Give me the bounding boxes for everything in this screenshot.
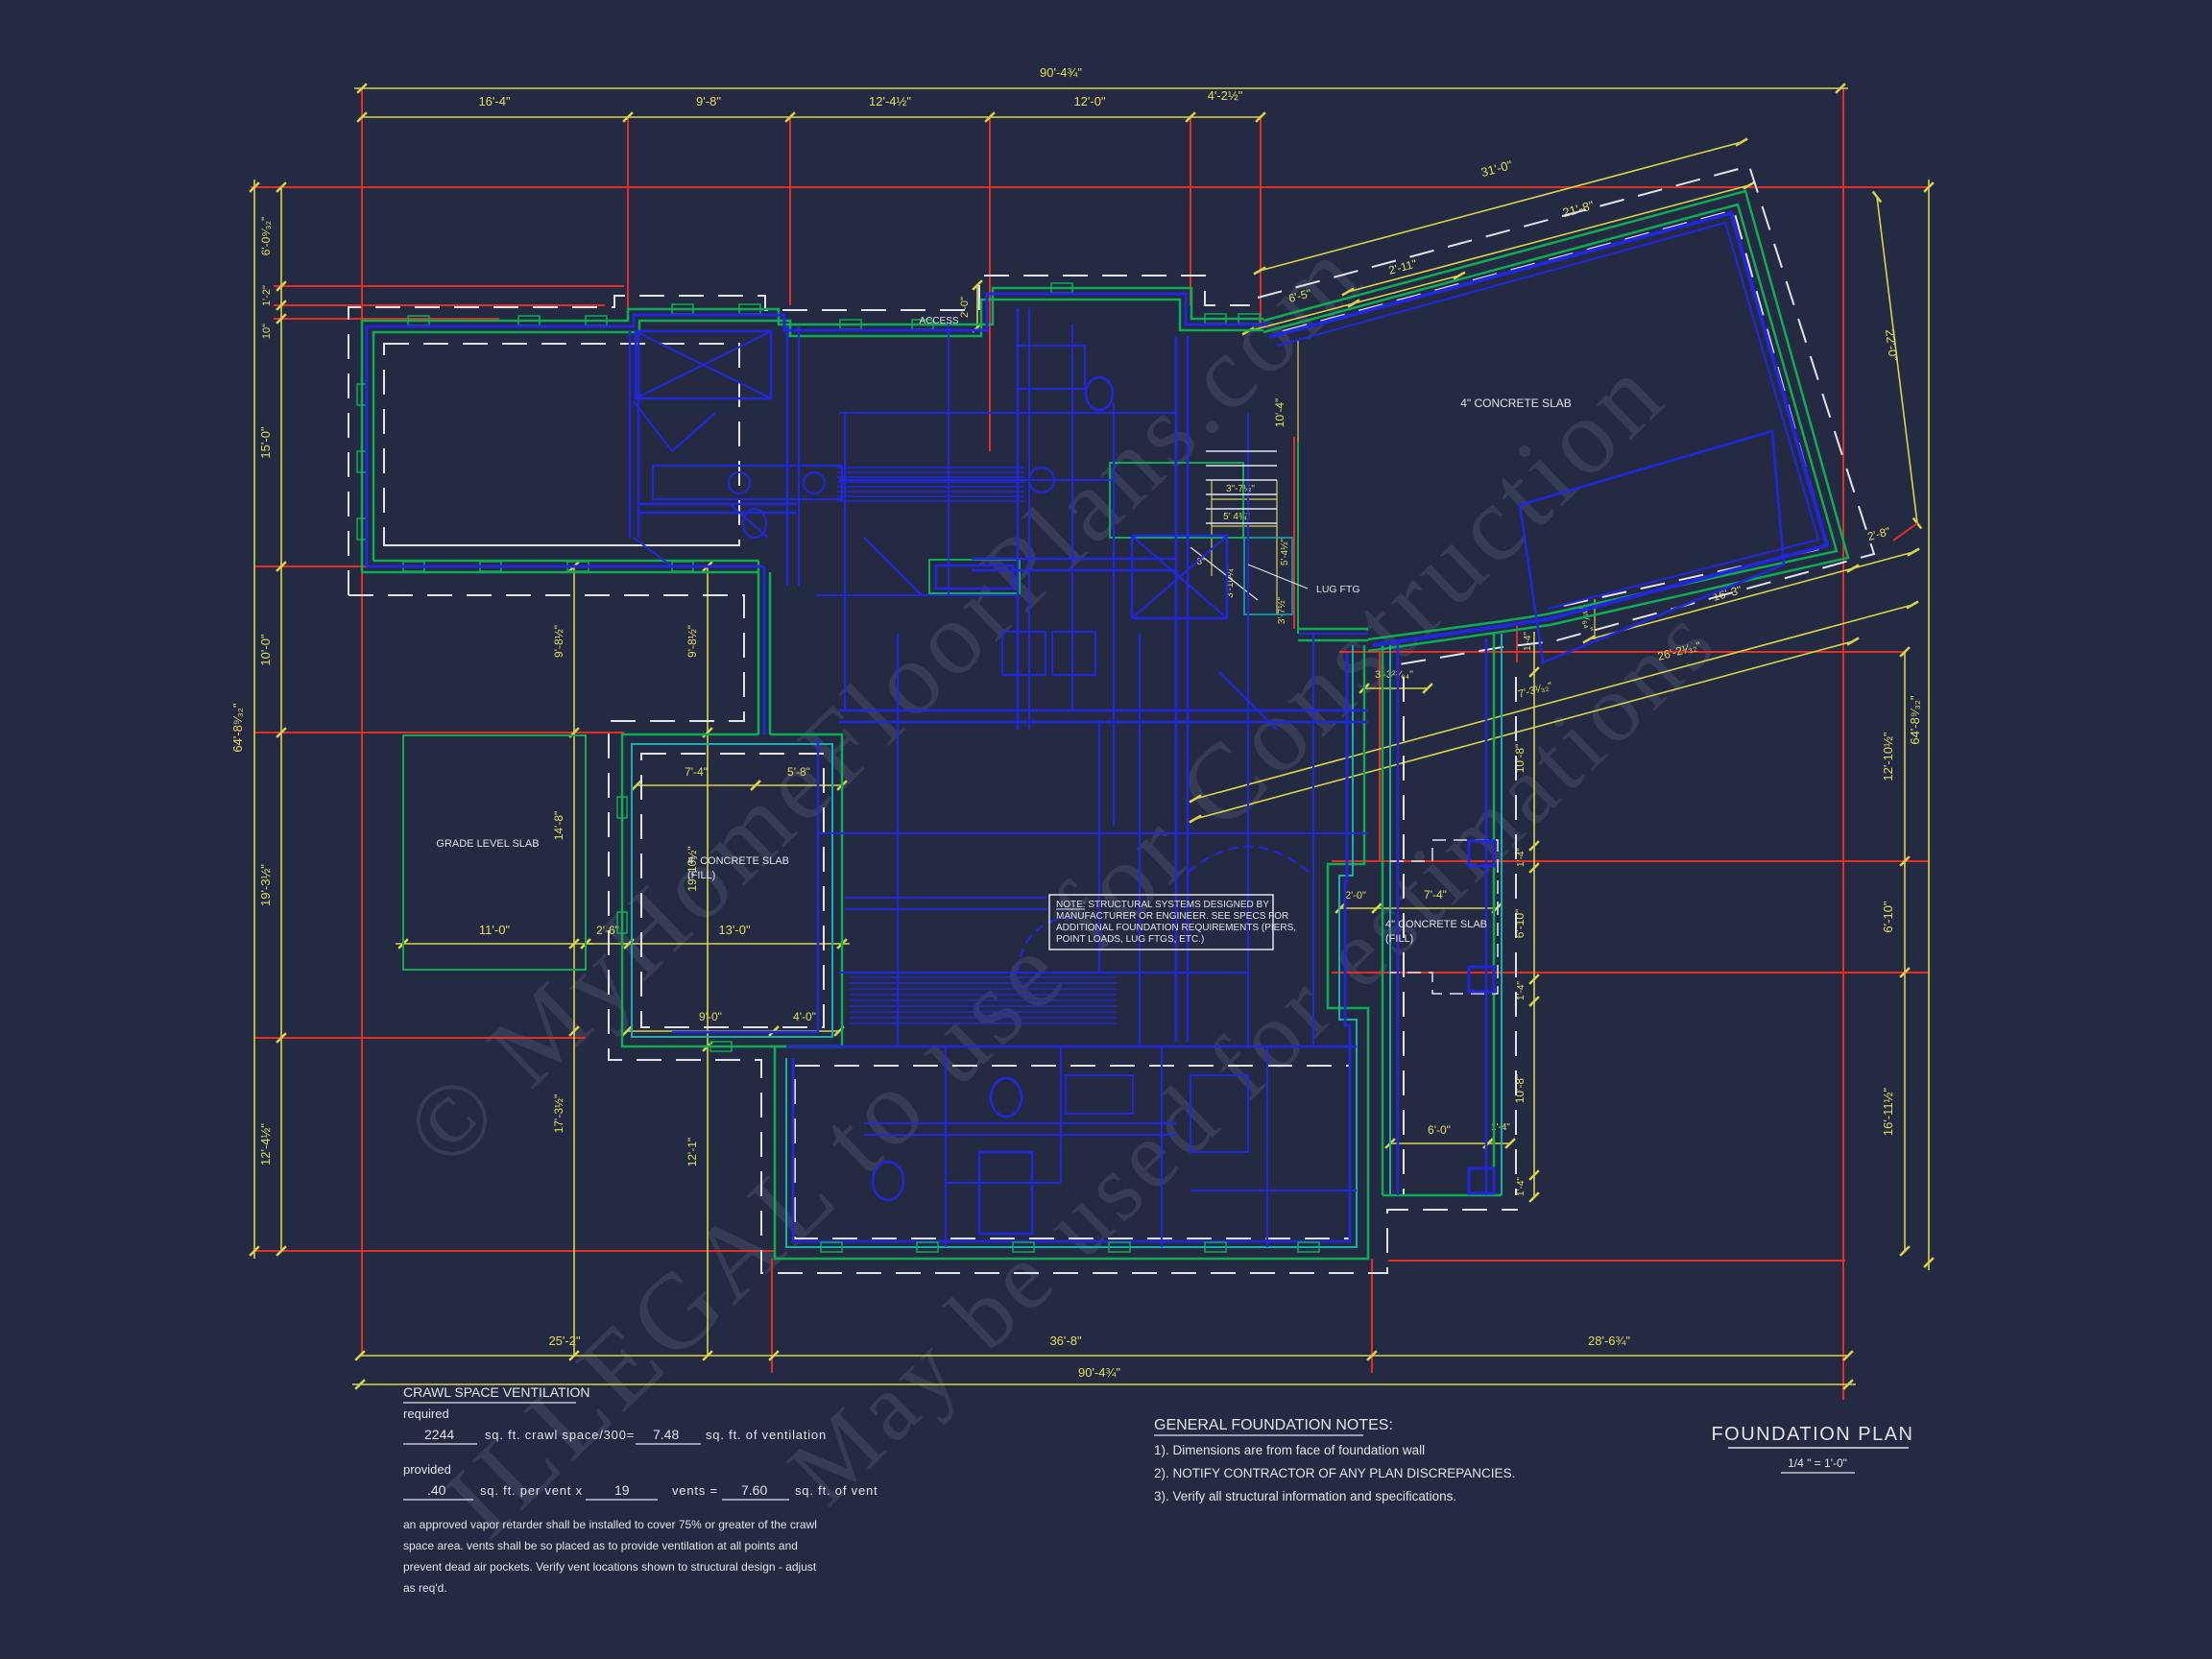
svg-text:12'-1": 12'-1" — [685, 1138, 699, 1167]
svg-text:10": 10" — [261, 324, 273, 339]
svg-text:required: required — [403, 1407, 449, 1421]
svg-text:2'-0": 2'-0" — [959, 297, 971, 318]
svg-text:16'-11½": 16'-11½" — [1881, 1088, 1895, 1137]
svg-text:9'-8½": 9'-8½" — [552, 625, 565, 658]
svg-text:6'-0": 6'-0" — [1428, 1123, 1451, 1137]
svg-text:.40: .40 — [427, 1482, 446, 1498]
svg-text:10'-0": 10'-0" — [258, 634, 273, 666]
svg-text:GENERAL FOUNDATION NOTES:: GENERAL FOUNDATION NOTES: — [1154, 1417, 1393, 1433]
svg-text:4'-2½": 4'-2½" — [1208, 88, 1243, 103]
svg-text:17'-3½": 17'-3½" — [552, 1094, 565, 1134]
svg-text:16'-4": 16'-4" — [478, 94, 511, 108]
svg-text:prevent dead air pockets. Veri: prevent dead air pockets. Verify vent lo… — [403, 1560, 817, 1574]
svg-text:3"-7½": 3"-7½" — [1226, 484, 1255, 494]
svg-text:7.48: 7.48 — [653, 1427, 679, 1442]
svg-text:90'-4¾": 90'-4¾" — [1078, 1365, 1120, 1380]
svg-text:3'-7½": 3'-7½" — [1277, 596, 1287, 624]
svg-text:2244: 2244 — [424, 1427, 454, 1442]
svg-text:11'-0": 11'-0" — [479, 923, 511, 937]
svg-text:5'-4½": 5'-4½" — [1280, 538, 1290, 565]
svg-text:10'-4": 10'-4" — [1273, 398, 1286, 428]
svg-text:2). NOTIFY CONTRACTOR OF ANY P: 2). NOTIFY CONTRACTOR OF ANY PLAN DISCRE… — [1154, 1466, 1515, 1480]
svg-text:12'-10½": 12'-10½" — [1881, 732, 1895, 781]
svg-text:12'-0": 12'-0" — [1073, 94, 1106, 108]
svg-text:19: 19 — [614, 1482, 630, 1498]
svg-text:6'-10": 6'-10" — [1881, 901, 1895, 933]
svg-text:an approved vapor retarder sha: an approved vapor retarder shall be inst… — [403, 1518, 817, 1531]
svg-text:LUG FTG: LUG FTG — [1316, 584, 1360, 595]
svg-text:5'-8": 5'-8" — [787, 765, 810, 779]
svg-text:5' 4¾": 5' 4¾" — [1223, 512, 1250, 522]
svg-text:(FILL): (FILL) — [1385, 933, 1413, 945]
svg-text:4'-0": 4'-0" — [793, 1010, 816, 1023]
svg-text:sq. ft. of ventilation: sq. ft. of ventilation — [706, 1428, 827, 1442]
svg-text:1). Dimensions are from face o: 1). Dimensions are from face of foundati… — [1154, 1443, 1425, 1457]
svg-text:13'-0": 13'-0" — [718, 923, 751, 937]
svg-text:CRAWL SPACE VENTILATION: CRAWL SPACE VENTILATION — [403, 1384, 589, 1400]
svg-text:vents =: vents = — [672, 1483, 718, 1498]
svg-text:12'-4½": 12'-4½" — [258, 1123, 273, 1166]
svg-text:19'-10½": 19'-10½" — [685, 846, 699, 891]
svg-text:ADDITIONAL FOUNDATION REQUIREM: ADDITIONAL FOUNDATION REQUIREMENTS (PIER… — [1056, 923, 1296, 933]
svg-text:28'-6¾": 28'-6¾" — [1588, 1334, 1630, 1348]
svg-text:36'-8": 36'-8" — [1049, 1334, 1082, 1348]
svg-text:3). Verify all structural info: 3). Verify all structural information an… — [1154, 1489, 1456, 1503]
svg-text:3'-3²¹⁄₆₄": 3'-3²¹⁄₆₄" — [1375, 669, 1413, 681]
svg-text:12'-4½": 12'-4½" — [869, 94, 911, 108]
svg-text:2'-0": 2'-0" — [1345, 890, 1366, 902]
svg-text:GRADE LEVEL SLAB: GRADE LEVEL SLAB — [436, 838, 539, 850]
svg-text:1'-4": 1'-4" — [1516, 848, 1527, 867]
svg-text:NOTE: STRUCTURAL SYSTEMS DESIG: NOTE: STRUCTURAL SYSTEMS DESIGNED BY — [1056, 900, 1269, 910]
svg-text:space area. vents shall be so: space area. vents shall be so placed as … — [403, 1539, 798, 1552]
svg-text:4" CONCRETE SLAB: 4" CONCRETE SLAB — [1385, 919, 1487, 930]
svg-text:64'-8⁹⁄₃₂": 64'-8⁹⁄₃₂" — [1908, 695, 1922, 745]
svg-text:POINT LOADS, LUG FTGS, ETC.): POINT LOADS, LUG FTGS, ETC.) — [1056, 934, 1204, 945]
svg-text:90'-4¾": 90'-4¾" — [1040, 65, 1082, 80]
svg-text:15'-0": 15'-0" — [258, 426, 273, 459]
svg-text:as req'd.: as req'd. — [403, 1581, 447, 1595]
svg-text:7'-4": 7'-4" — [1424, 888, 1447, 902]
svg-text:4" CONCRETE SLAB: 4" CONCRETE SLAB — [1460, 397, 1572, 410]
svg-text:ACCESS: ACCESS — [919, 316, 958, 326]
svg-text:1'-2": 1'-2" — [261, 285, 273, 306]
svg-text:1'-4": 1'-4" — [1516, 981, 1527, 1000]
svg-text:FOUNDATION PLAN: FOUNDATION PLAN — [1711, 1424, 1913, 1445]
svg-text:64'-8⁹⁄₃₂": 64'-8⁹⁄₃₂" — [230, 703, 245, 753]
svg-text:9'-8": 9'-8" — [696, 94, 721, 108]
svg-text:1/4 " = 1'-0": 1/4 " = 1'-0" — [1788, 1456, 1847, 1470]
svg-text:9'-0": 9'-0" — [699, 1010, 722, 1023]
svg-text:19'-3½": 19'-3½" — [258, 864, 273, 906]
svg-text:(FILL): (FILL) — [687, 870, 715, 881]
svg-text:14'-8": 14'-8" — [552, 811, 565, 841]
svg-text:6'-0⁹⁄₃₂": 6'-0⁹⁄₃₂" — [259, 217, 273, 256]
svg-text:sq. ft. of vent: sq. ft. of vent — [795, 1483, 878, 1498]
svg-text:sq. ft. per vent x: sq. ft. per vent x — [480, 1483, 583, 1498]
svg-text:7'-4": 7'-4" — [685, 765, 708, 779]
svg-text:1'-4": 1'-4" — [1516, 1177, 1527, 1196]
svg-text:MANUFACTURER OR ENGINEER. SEE: MANUFACTURER OR ENGINEER. SEE SPECS FOR — [1056, 911, 1288, 922]
svg-text:9'-8½": 9'-8½" — [685, 625, 699, 658]
svg-text:provided: provided — [403, 1462, 451, 1477]
svg-text:4" CONCRETE SLAB: 4" CONCRETE SLAB — [687, 855, 789, 867]
svg-text:1'-4": 1'-4" — [1523, 632, 1533, 651]
svg-text:25'-2": 25'-2" — [548, 1334, 581, 1348]
svg-text:sq. ft. crawl space/300=: sq. ft. crawl space/300= — [485, 1428, 635, 1442]
svg-text:7.60: 7.60 — [741, 1482, 767, 1498]
